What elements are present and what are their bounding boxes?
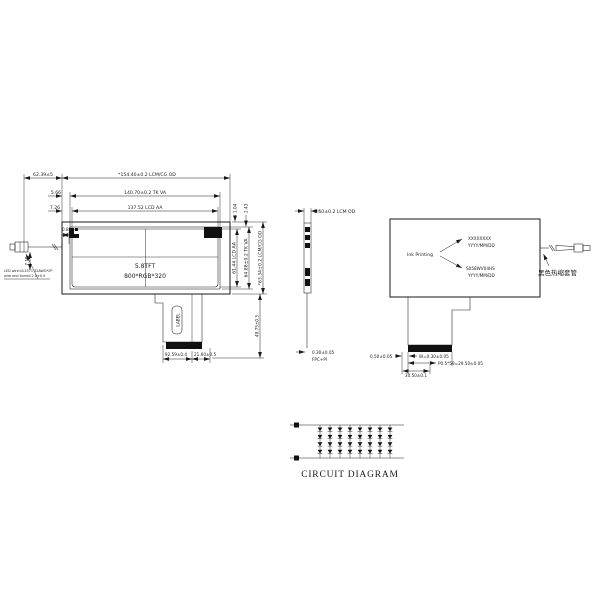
led-symbol bbox=[388, 442, 393, 446]
led-symbol bbox=[378, 442, 383, 446]
led-symbol bbox=[378, 450, 383, 454]
led-symbol bbox=[348, 428, 353, 432]
dim-wire-drop: 7.19 bbox=[25, 256, 30, 266]
led-symbol bbox=[348, 450, 353, 454]
fpc-material-label: FPC+PI bbox=[312, 357, 327, 362]
label-text: LABEL bbox=[176, 313, 181, 327]
screen-size-label: 5.8TFT bbox=[135, 263, 156, 270]
led-symbol bbox=[368, 442, 373, 446]
heat-shrink-note: 黑色热缩套管 bbox=[538, 268, 578, 277]
led-symbol bbox=[368, 435, 373, 439]
wire-note-line2: wire end tinned 2.0±0.5 bbox=[4, 274, 45, 278]
back-outline bbox=[390, 219, 540, 297]
wire-note-line1: LED wire:UL1571 32AWG*2P bbox=[4, 269, 52, 273]
led-symbol bbox=[338, 428, 343, 432]
dim-connector-width: 30.50±0.1 bbox=[405, 373, 427, 378]
drawing-sheet: 5.8TFT 800*RGB*320 62.39±5 *154.40±0.2 L… bbox=[0, 0, 600, 600]
dim-module-thickness: 5.50±0.2 LCM OD bbox=[314, 209, 356, 215]
front-fpc-tail: LABEL 92.59±0.4 21.60±0.5 49.75±0.5 bbox=[155, 294, 264, 363]
led-symbol bbox=[368, 428, 373, 432]
dim-va-height: 64.88±0.2 TK VA bbox=[244, 238, 250, 278]
led-symbol bbox=[388, 435, 393, 439]
dim-trace-width: W=0.30±0.05 bbox=[419, 354, 449, 359]
cathode-terminal bbox=[294, 456, 299, 461]
led-symbol bbox=[318, 450, 323, 454]
led-symbol bbox=[358, 442, 363, 446]
dim-wire-stub: 0.80 bbox=[62, 227, 72, 232]
dim-aa-gap: 7.26 bbox=[50, 205, 60, 211]
anode-terminal bbox=[294, 423, 299, 428]
led-symbol bbox=[358, 428, 363, 432]
dim-fpc-x: 92.59±0.4 bbox=[165, 352, 187, 357]
lcd-module-drawing: 5.8TFT 800*RGB*320 62.39±5 *154.40±0.2 L… bbox=[0, 0, 600, 600]
wire-connector-tip bbox=[10, 244, 15, 250]
side-view: 5.50±0.2 LCM OD 0.30±0.05 FPC+PI bbox=[295, 208, 356, 362]
dim-top-gap1: 1.04 bbox=[233, 203, 238, 213]
led-symbol bbox=[358, 450, 363, 454]
marking1-line1: XXXXXXXX bbox=[468, 236, 491, 241]
dim-pitch: P0.5*59=29.50±0.05 bbox=[438, 361, 483, 366]
led-grid bbox=[318, 425, 393, 458]
dim-top-gap2: 2.43 bbox=[244, 203, 249, 213]
led-symbol bbox=[388, 428, 393, 432]
led-symbol bbox=[338, 450, 343, 454]
led-symbol bbox=[328, 435, 333, 439]
circuit-diagram: CIRCUIT DIAGRAM bbox=[290, 423, 404, 481]
front-right-dimensions: 61.44 LCD AA 64.88±0.2 TK VA *63.34±0.2 … bbox=[220, 203, 267, 294]
dim-aa-width: 137.52 LCD AA bbox=[128, 205, 164, 211]
circuit-diagram-title: CIRCUIT DIAGRAM bbox=[301, 470, 399, 480]
dim-wire-length: 62.39±5 bbox=[33, 172, 53, 178]
marking1-line2: YYYY/MM/DD bbox=[467, 243, 495, 248]
wire-connector-body bbox=[15, 242, 28, 252]
led-symbol bbox=[318, 442, 323, 446]
back-fpc-connector-bar bbox=[408, 345, 452, 352]
marking2-line2: YYYY/MM/DD bbox=[467, 273, 495, 278]
led-symbol bbox=[318, 428, 323, 432]
led-symbol bbox=[328, 450, 333, 454]
led-symbol bbox=[378, 435, 383, 439]
led-symbol bbox=[318, 435, 323, 439]
back-connector-tip bbox=[583, 246, 590, 251]
front-view: 5.8TFT 800*RGB*320 62.39±5 *154.40±0.2 L… bbox=[4, 172, 267, 363]
back-wire-assembly: 黑色热缩套管 bbox=[538, 244, 590, 277]
led-symbol bbox=[358, 435, 363, 439]
led-symbol bbox=[328, 442, 333, 446]
led-symbol bbox=[388, 450, 393, 454]
led-symbol bbox=[338, 435, 343, 439]
fpc-connector-bar bbox=[166, 342, 202, 349]
dim-od-height: *63.34±0.2 LCM/CG OD bbox=[258, 230, 264, 285]
dim-edge-gap: 0.50±0.05 bbox=[370, 354, 392, 359]
back-connector-body bbox=[574, 244, 583, 252]
dim-va-width: 140.70±0.2 TK VA bbox=[124, 190, 167, 196]
led-symbol bbox=[368, 450, 373, 454]
wire-taper bbox=[556, 246, 574, 251]
dim-fpc-thickness: 0.30±0.05 bbox=[312, 350, 334, 355]
dim-va-gap: 5.66 bbox=[51, 190, 61, 196]
screen-resolution-label: 800*RGB*320 bbox=[124, 273, 166, 280]
led-symbol bbox=[348, 435, 353, 439]
led-symbol bbox=[338, 442, 343, 446]
driver-ic-block bbox=[204, 227, 222, 238]
ink-printing-label: Ink Printing bbox=[407, 252, 433, 258]
led-symbol bbox=[348, 442, 353, 446]
front-top-dimensions: 62.39±5 *154.40±0.2 LCM/CG OD 5.66 140.7… bbox=[24, 172, 230, 242]
marking2-line1: S058WV04HS bbox=[466, 266, 495, 271]
led-symbol bbox=[328, 428, 333, 432]
dim-fpc-length: 49.75±0.5 bbox=[255, 315, 260, 337]
back-view: Ink Printing XXXXXXXX YYYY/MM/DD S058WV0… bbox=[370, 219, 590, 378]
dim-od-width: *154.40±0.2 LCM/CG OD bbox=[118, 172, 176, 178]
led-symbol bbox=[378, 428, 383, 432]
back-fpc-tail: 0.50±0.05 W=0.30±0.05 P0.5*59=29.50±0.05… bbox=[370, 297, 483, 378]
dim-fpc-width: 21.60±0.5 bbox=[194, 352, 216, 357]
dim-aa-height: 61.44 LCD AA bbox=[232, 241, 238, 274]
